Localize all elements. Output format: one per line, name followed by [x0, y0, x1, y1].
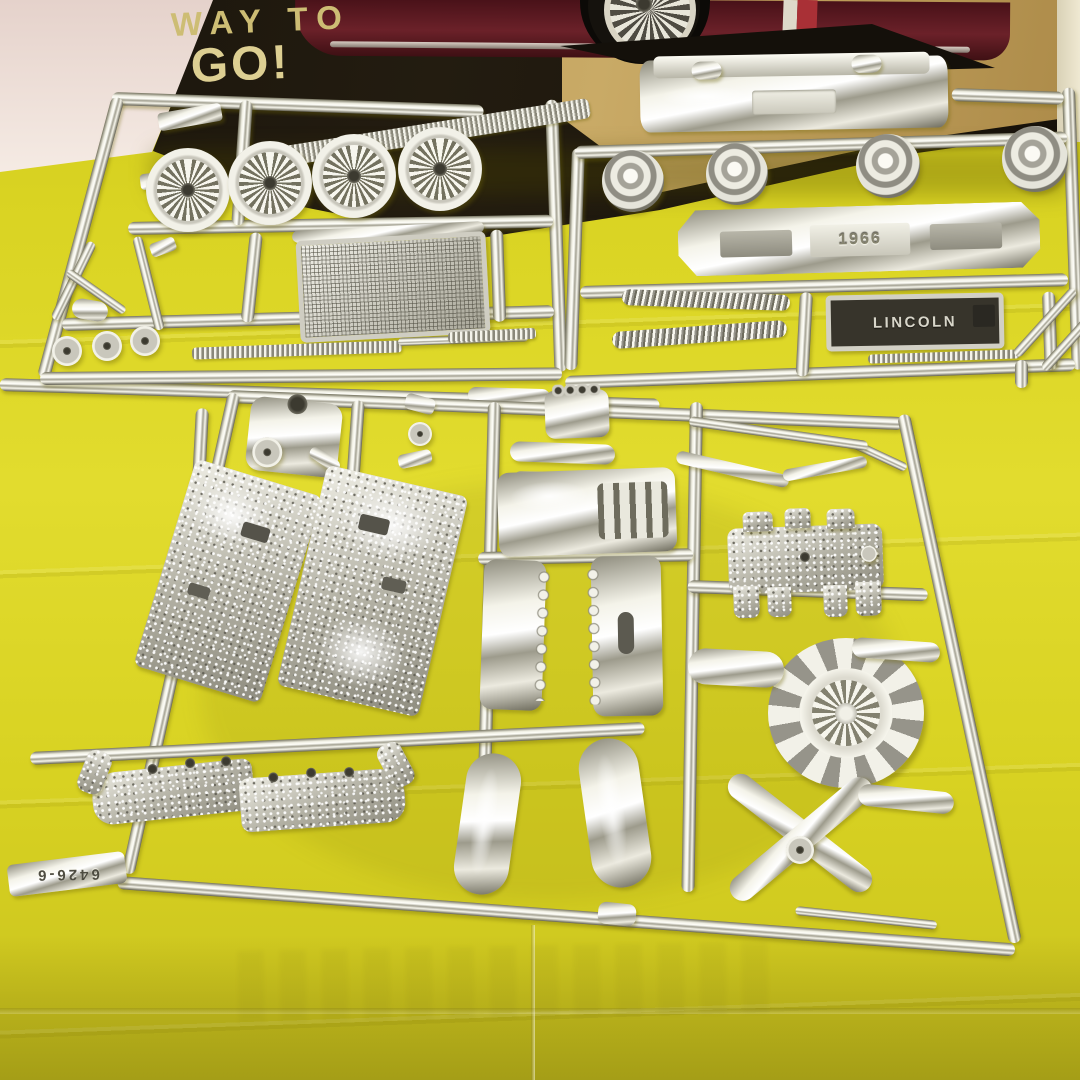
wheel-cover-turbine-2	[228, 141, 312, 225]
mold-number-text: 6426-6	[34, 865, 99, 883]
manifold-riser	[784, 508, 811, 529]
oil-pan-glare	[509, 480, 590, 513]
rear-bumper-center-panel: 1966	[810, 223, 911, 258]
pulley-hole	[263, 448, 272, 457]
block-glare	[184, 475, 278, 556]
manifold-riser	[742, 511, 773, 532]
exhaust-manifold-2	[238, 767, 406, 832]
pulley-part-2	[92, 331, 122, 361]
transmission-cover-2	[591, 555, 664, 716]
pulley-hole	[141, 337, 149, 345]
rear-bumper-recess	[720, 230, 793, 258]
cover-slot	[618, 612, 635, 654]
manifold-leg	[823, 585, 848, 618]
photo-canvas: { "box_art": { "tagline_line1": "WAY TO"…	[0, 0, 1080, 1080]
carburetor	[544, 389, 610, 439]
linkage-barbell	[510, 441, 616, 465]
part-hole	[417, 431, 423, 437]
turbine-center	[181, 183, 194, 196]
tagline-line2: GO!	[190, 35, 354, 92]
exhaust-port	[268, 772, 279, 783]
bumper-glare	[660, 85, 750, 109]
small-engine-part	[597, 901, 637, 927]
block-glare	[309, 608, 412, 696]
wheel-cover-turbine-4	[398, 127, 482, 211]
block-slot	[381, 576, 407, 594]
oil-pan-ribs	[597, 481, 669, 539]
exhaust-port	[221, 756, 232, 767]
front-bumper	[639, 55, 948, 132]
hubcap-1	[602, 150, 664, 212]
turbine-center	[347, 169, 360, 182]
pulley-part-1	[52, 336, 82, 366]
exhaust-port	[185, 758, 196, 769]
fan-hub	[786, 836, 814, 864]
manifold-leg	[767, 587, 792, 618]
oil-pan	[497, 467, 678, 557]
hubcap-3	[856, 134, 920, 198]
exhaust-port	[306, 767, 317, 778]
cover-glare	[465, 765, 504, 877]
pulley-part-3	[130, 326, 160, 356]
block-slot	[358, 513, 391, 535]
hubcap-4	[1002, 126, 1068, 192]
turbine-center	[263, 176, 276, 189]
bumper-guard	[851, 54, 881, 73]
grille-mesh	[295, 231, 490, 343]
transmission-cover-1	[479, 559, 546, 711]
rivet-row	[587, 566, 601, 704]
rear-bumper-year: 1966	[838, 230, 882, 249]
sprue-rail	[1015, 360, 1028, 388]
air-cleaner-snorkel	[687, 648, 785, 689]
bumper-guard	[691, 61, 721, 80]
air-cleaner	[768, 638, 924, 788]
cover-glare	[591, 751, 633, 869]
manifold-leg	[855, 581, 882, 616]
block-slot	[240, 521, 271, 544]
wheel-cover-turbine-3	[312, 134, 396, 218]
manifold-port	[800, 552, 810, 562]
bumper-center-panel	[752, 89, 836, 114]
air-cleaner-center	[835, 703, 857, 724]
intake-manifold	[727, 523, 884, 594]
paper-ghost-print	[237, 941, 783, 1023]
fan-hub-center	[796, 846, 805, 855]
manifold-riser	[826, 508, 855, 529]
wheel-cover-turbine-1	[146, 148, 230, 232]
small-engine-part	[408, 422, 432, 446]
manifold-leg	[733, 586, 760, 619]
pulley-hole	[103, 342, 111, 350]
pump-pulley	[251, 436, 284, 469]
rear-bumper-recess	[930, 222, 1003, 250]
block-slot	[187, 582, 212, 600]
exhaust-port	[147, 764, 158, 775]
pulley-hole	[63, 347, 71, 355]
box-tagline: WAY TO GO!	[170, 0, 353, 93]
exhaust-port	[344, 767, 355, 778]
manifold-emblem	[861, 546, 878, 563]
turbine-center	[433, 162, 446, 175]
carb-stacks	[552, 383, 600, 397]
license-plate-text: LINCOLN	[873, 313, 957, 331]
hubcap-2	[706, 143, 768, 205]
rear-bumper: 1966	[677, 201, 1041, 276]
license-plate: LINCOLN	[826, 292, 1005, 351]
plate-side-box	[973, 305, 995, 327]
